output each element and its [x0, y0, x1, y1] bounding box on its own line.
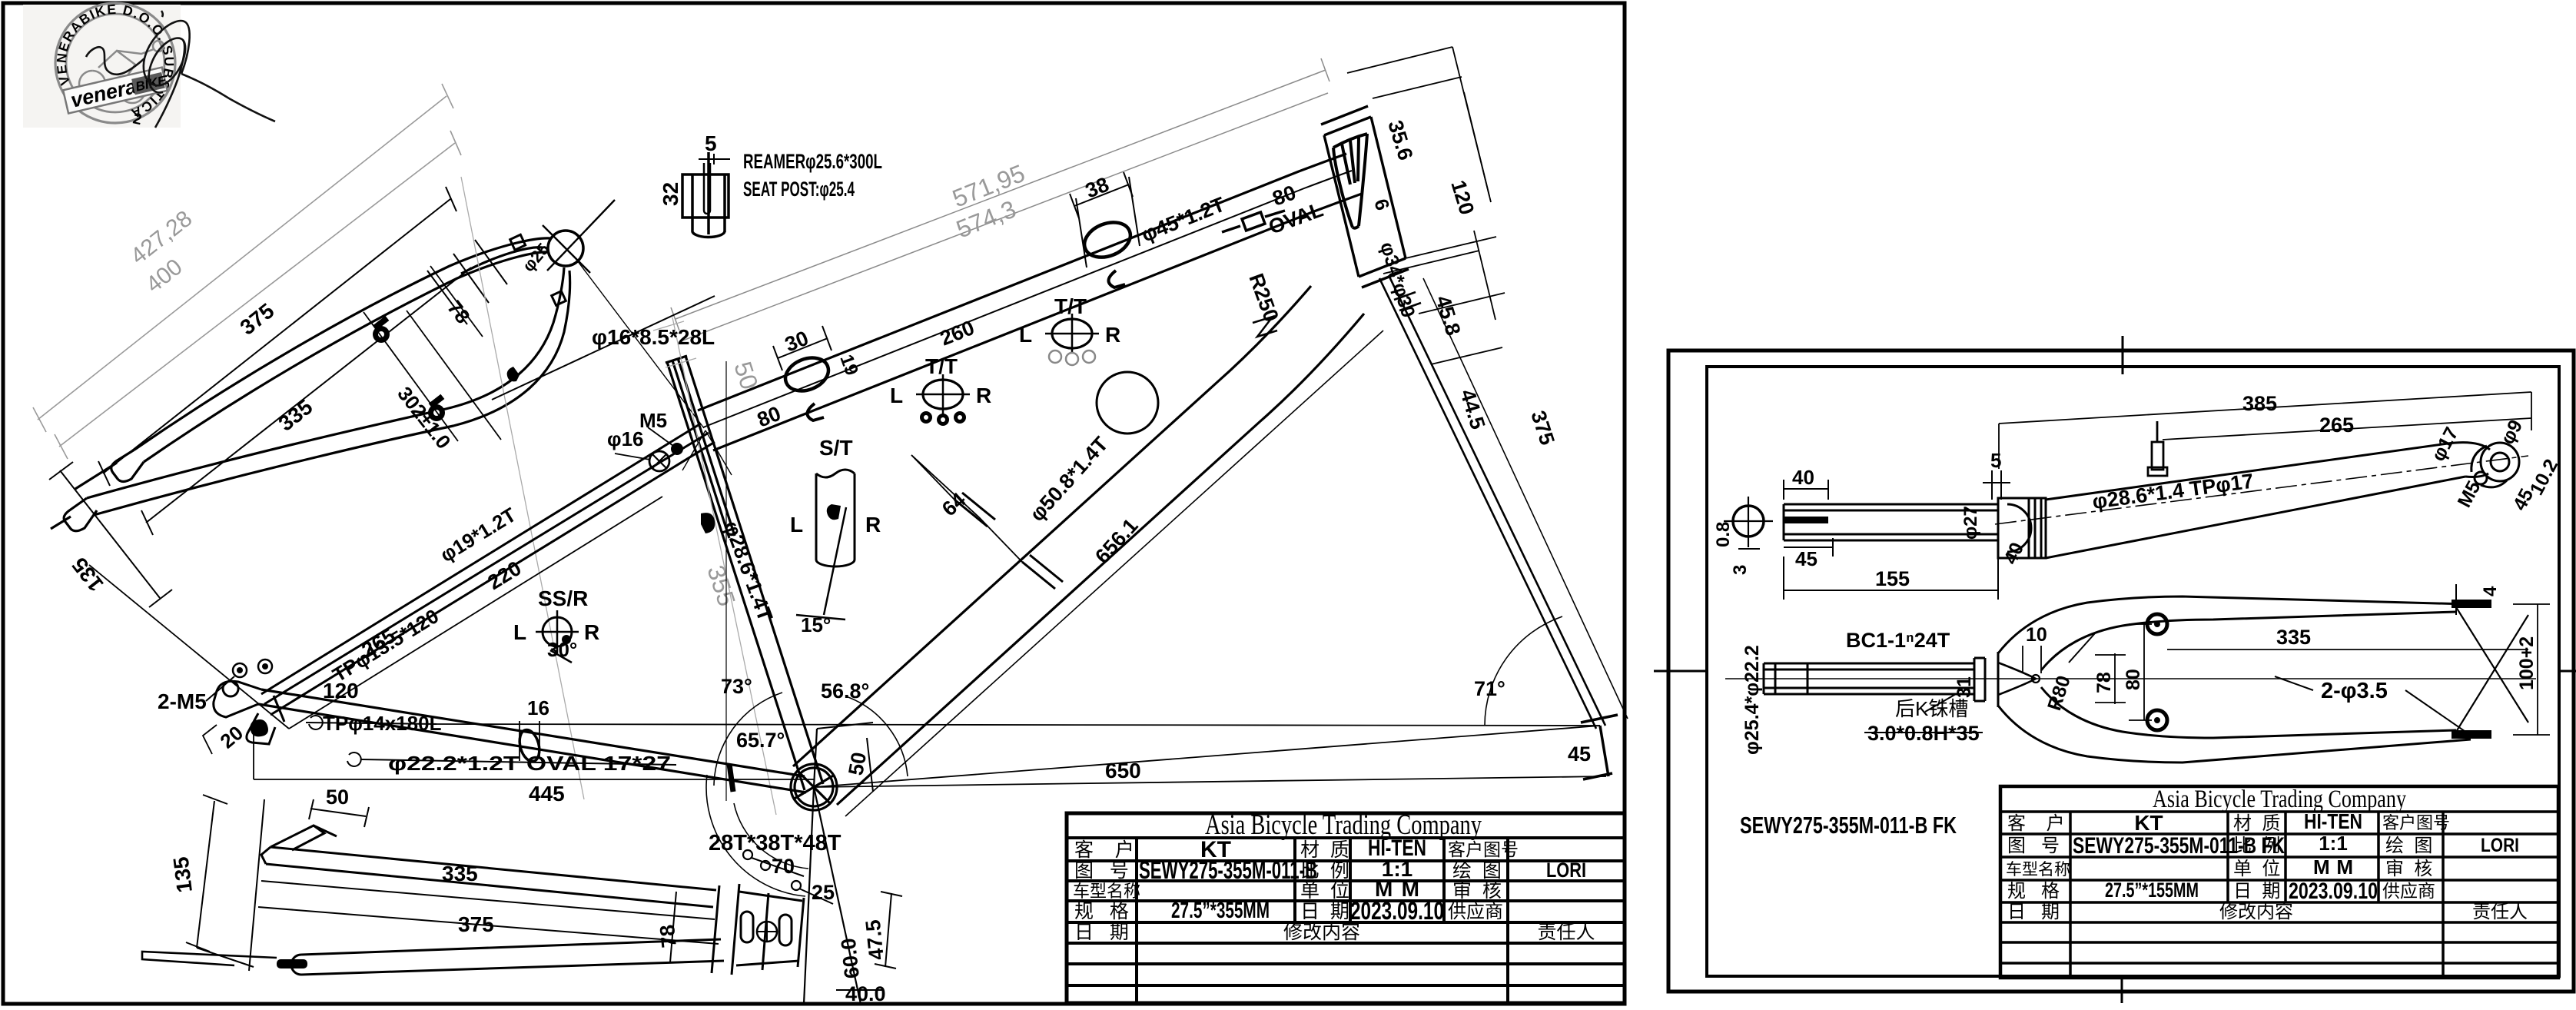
svg-text:Asia Bicycle Trading Company: Asia Bicycle Trading Company: [2153, 786, 2406, 813]
svg-text:供应商: 供应商: [2382, 881, 2435, 901]
svg-text:L: L: [790, 513, 803, 537]
svg-text:71°: 71°: [1474, 677, 1505, 700]
svg-text:27.5”*355MM: 27.5”*355MM: [1171, 899, 1270, 923]
svg-text:客户图号: 客户图号: [2382, 813, 2450, 832]
svg-text:28T*38T*48T: 28T*38T*48T: [709, 831, 842, 856]
svg-text:LORI: LORI: [1546, 859, 1586, 882]
svg-text:265: 265: [2319, 414, 2354, 437]
svg-text:SS/R: SS/R: [538, 586, 588, 610]
svg-text:Asia Bicycle Trading Company: Asia Bicycle Trading Company: [1205, 809, 1482, 841]
svg-text:日 期: 日 期: [1300, 901, 1349, 922]
svg-text:10: 10: [2026, 624, 2047, 646]
svg-text:单 位: 单 位: [1300, 880, 1349, 902]
svg-text:3: 3: [1730, 565, 1751, 575]
svg-text:SEAT POST:φ25.4: SEAT POST:φ25.4: [743, 178, 855, 201]
svg-text:T/T: T/T: [1054, 294, 1087, 318]
svg-text:R: R: [976, 384, 991, 407]
svg-text:40.0: 40.0: [845, 982, 886, 1005]
svg-text:47.5: 47.5: [861, 919, 888, 961]
svg-text:4: 4: [2480, 586, 2501, 596]
svg-text:100+2: 100+2: [2516, 636, 2538, 690]
svg-text:客户图号: 客户图号: [1448, 839, 1519, 859]
svg-text:S/T: S/T: [819, 436, 853, 460]
svg-text:车型名称: 车型名称: [1073, 882, 1140, 901]
svg-text:单 位: 单 位: [2233, 859, 2280, 879]
svg-text:2023.09.10: 2023.09.10: [1350, 897, 1444, 925]
svg-text:客 户: 客 户: [2007, 813, 2065, 834]
svg-text:KT: KT: [2134, 811, 2163, 835]
svg-text:0.8: 0.8: [1713, 522, 1734, 547]
svg-text:73°: 73°: [721, 675, 752, 698]
svg-text:车型名称: 车型名称: [2006, 861, 2070, 879]
svg-text:审 核: 审 核: [2385, 859, 2432, 879]
svg-text:56.8°: 56.8°: [821, 679, 869, 703]
svg-text:2-M5: 2-M5: [158, 689, 207, 713]
svg-text:审 核: 审 核: [1452, 880, 1502, 902]
svg-text:LORI: LORI: [2481, 835, 2519, 856]
svg-text:日 期: 日 期: [2007, 902, 2060, 922]
svg-text:日 期: 日 期: [2233, 881, 2280, 902]
svg-text:45: 45: [1795, 547, 1817, 570]
svg-text:1:1: 1:1: [2319, 832, 2348, 855]
svg-text:650: 650: [1105, 759, 1141, 782]
svg-text:HI-TEN: HI-TEN: [2304, 809, 2362, 833]
svg-text:修改内容: 修改内容: [2219, 902, 2293, 922]
svg-text:78: 78: [2093, 672, 2115, 693]
svg-text:L: L: [890, 384, 903, 407]
svg-text:比 例: 比 例: [2233, 836, 2280, 856]
svg-text:135: 135: [168, 856, 196, 894]
svg-text:120: 120: [323, 679, 359, 703]
svg-text:L: L: [513, 620, 526, 644]
svg-text:50: 50: [844, 750, 871, 777]
svg-text:责任人: 责任人: [2472, 902, 2528, 922]
svg-text:R: R: [865, 513, 881, 537]
svg-text:25: 25: [812, 881, 835, 904]
svg-text:R: R: [584, 620, 599, 644]
svg-text:客 户: 客 户: [1074, 839, 1134, 861]
svg-text:445: 445: [529, 782, 565, 806]
svg-text:5: 5: [1990, 449, 2001, 472]
svg-text:40: 40: [1792, 466, 1814, 489]
svg-text:图 号: 图 号: [2007, 836, 2060, 856]
svg-text:供应商: 供应商: [1448, 902, 1503, 922]
svg-text:16: 16: [527, 696, 549, 719]
svg-text:2023.09.10: 2023.09.10: [2289, 879, 2378, 904]
svg-text:31: 31: [1954, 676, 1975, 698]
svg-text:SEWY275-355M-011-B: SEWY275-355M-011-B: [1139, 856, 1317, 884]
svg-text:L: L: [1019, 323, 1032, 347]
svg-text:φ16: φ16: [607, 427, 644, 450]
svg-text:T/T: T/T: [925, 354, 958, 378]
svg-text:规 格: 规 格: [1074, 901, 1129, 922]
svg-text:图 号: 图 号: [1074, 860, 1129, 882]
svg-text:绘 图: 绘 图: [2385, 836, 2432, 856]
svg-text:φ27: φ27: [1960, 506, 1981, 540]
svg-text:材 质: 材 质: [2233, 813, 2280, 834]
svg-text:335: 335: [2276, 626, 2311, 649]
svg-text:335: 335: [442, 862, 478, 885]
svg-text:155: 155: [1875, 567, 1910, 590]
svg-text:M M: M M: [2313, 856, 2353, 879]
svg-text:责任人: 责任人: [1537, 922, 1595, 943]
svg-text:后K铢槽: 后K铢槽: [1895, 697, 1968, 720]
svg-text:375: 375: [458, 912, 494, 936]
svg-text:32: 32: [659, 182, 682, 206]
svg-text:5: 5: [705, 131, 717, 155]
svg-text:2-φ3.5: 2-φ3.5: [2321, 679, 2388, 703]
svg-text:80: 80: [2123, 669, 2144, 690]
svg-text:R: R: [1105, 323, 1120, 347]
svg-text:修改内容: 修改内容: [1283, 922, 1360, 943]
svg-text:规 格: 规 格: [2007, 881, 2060, 902]
svg-text:385: 385: [2242, 392, 2277, 415]
svg-text:60.0: 60.0: [837, 937, 864, 979]
svg-text:78: 78: [656, 923, 681, 949]
svg-text:45: 45: [1568, 743, 1591, 766]
svg-text:φ25.4*φ22.2: φ25.4*φ22.2: [1741, 645, 1763, 755]
svg-text:50: 50: [326, 786, 349, 809]
svg-text:绘 图: 绘 图: [1452, 860, 1502, 882]
svg-text:SEWY275-355M-011-B FK: SEWY275-355M-011-B FK: [1740, 812, 1957, 839]
svg-text:比 例: 比 例: [1300, 860, 1349, 882]
svg-text:日 期: 日 期: [1074, 922, 1129, 943]
svg-text:BC1-1ⁿ24T: BC1-1ⁿ24T: [1846, 629, 1950, 652]
svg-text:REAMERφ25.6*300L: REAMERφ25.6*300L: [743, 150, 882, 173]
svg-text:65.7°: 65.7°: [736, 729, 785, 752]
svg-text:27.5”*155MM: 27.5”*155MM: [2105, 879, 2199, 902]
